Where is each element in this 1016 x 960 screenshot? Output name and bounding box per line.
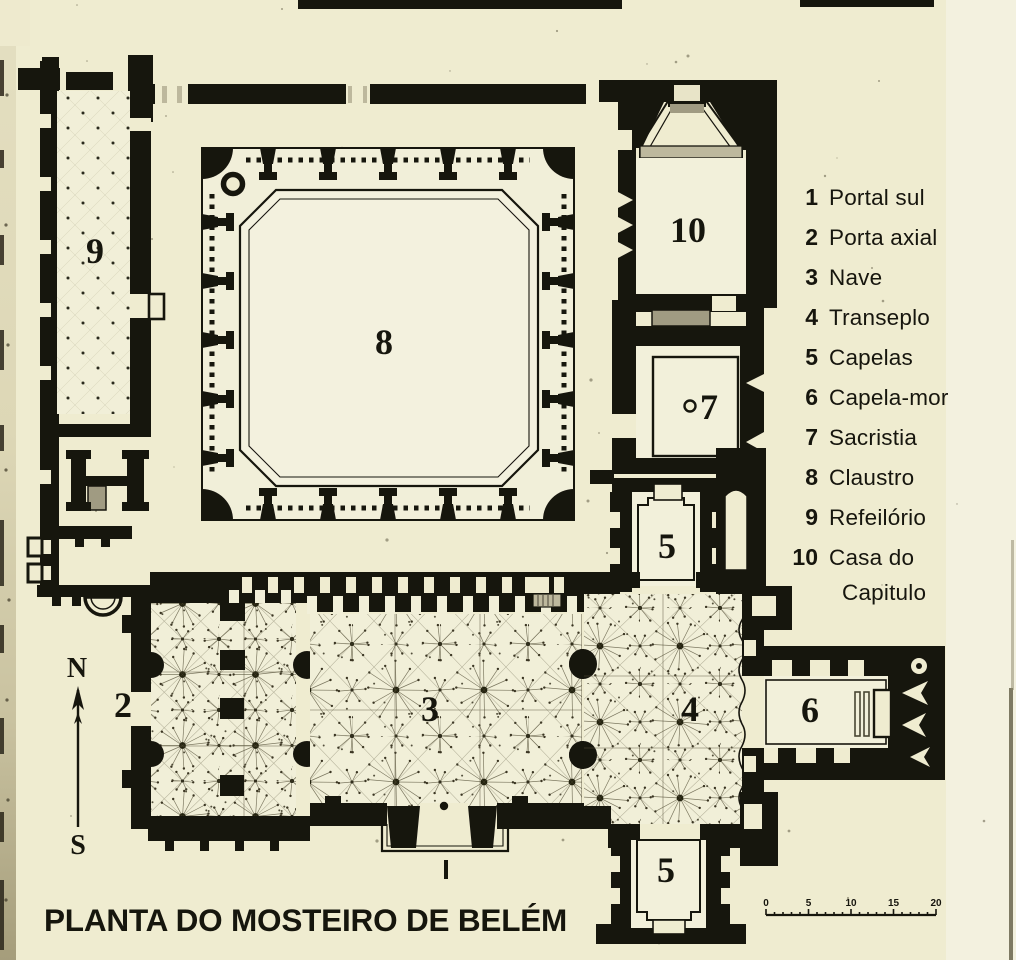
svg-text:6: 6 — [805, 384, 818, 410]
svg-text:0: 0 — [763, 898, 769, 909]
svg-text:2: 2 — [114, 685, 132, 725]
svg-text:9: 9 — [86, 231, 104, 271]
svg-text:2: 2 — [805, 224, 818, 250]
svg-text:20: 20 — [930, 898, 942, 909]
svg-text:Portal sul: Portal sul — [829, 185, 925, 210]
svg-text:4: 4 — [805, 304, 818, 330]
svg-text:Capela-mor: Capela-mor — [829, 385, 949, 410]
svg-text:6: 6 — [801, 690, 819, 730]
svg-text:9: 9 — [805, 504, 818, 530]
svg-text:Casa do: Casa do — [829, 545, 914, 570]
svg-text:Capitulo: Capitulo — [842, 580, 926, 605]
svg-text:5: 5 — [806, 898, 812, 909]
svg-text:Capelas: Capelas — [829, 345, 913, 370]
svg-text:7: 7 — [700, 387, 718, 427]
svg-text:Porta axial: Porta axial — [829, 225, 938, 250]
svg-text:Sacristia: Sacristia — [829, 425, 917, 450]
svg-text:S: S — [70, 830, 86, 861]
svg-text:5: 5 — [805, 344, 818, 370]
svg-text:Claustro: Claustro — [829, 465, 914, 490]
svg-text:Transeplo: Transeplo — [829, 305, 930, 330]
svg-text:10: 10 — [670, 210, 706, 250]
svg-text:3: 3 — [805, 264, 818, 290]
svg-text:15: 15 — [888, 898, 900, 909]
svg-text:8: 8 — [375, 322, 393, 362]
svg-text:3: 3 — [421, 689, 439, 729]
svg-text:Nave: Nave — [829, 265, 882, 290]
svg-text:PLANTA DO MOSTEIRO DE BELÉM: PLANTA DO MOSTEIRO DE BELÉM — [44, 902, 567, 938]
svg-text:1: 1 — [805, 184, 818, 210]
svg-text:4: 4 — [681, 689, 699, 729]
svg-text:7: 7 — [805, 424, 818, 450]
svg-text:8: 8 — [805, 464, 818, 490]
svg-text:5: 5 — [657, 850, 675, 890]
svg-text:10: 10 — [792, 544, 818, 570]
svg-text:Refeilório: Refeilório — [829, 505, 926, 530]
svg-text:10: 10 — [845, 898, 857, 909]
svg-text:N: N — [67, 653, 87, 684]
svg-text:5: 5 — [658, 526, 676, 566]
